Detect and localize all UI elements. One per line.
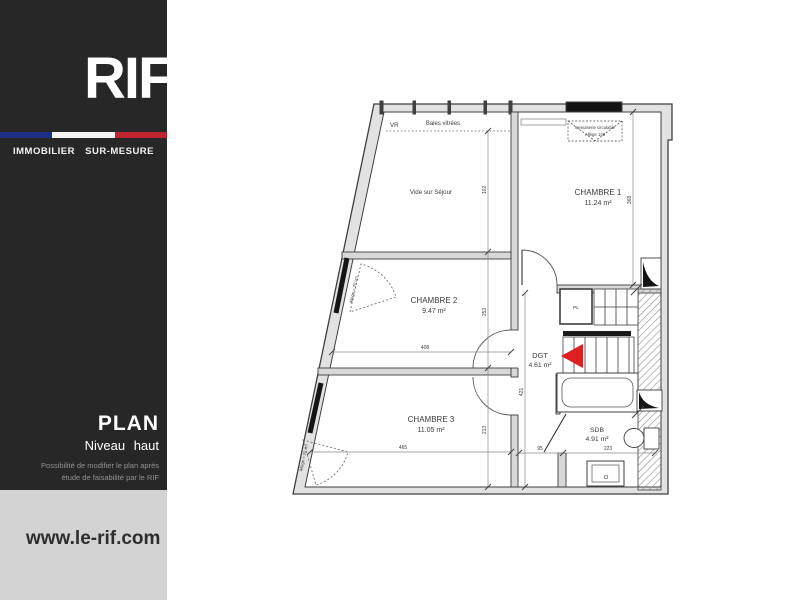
dgt-area: 4.61 m² bbox=[528, 362, 552, 369]
sdb-area: 4.91 m² bbox=[585, 436, 609, 443]
feasibility-note: Possibilité de modifier le plan après ét… bbox=[41, 460, 159, 484]
flag-red bbox=[115, 132, 167, 138]
brand-panel: RIF IMMOBILIER SUR-MESURE PLAN Niveau ha… bbox=[0, 0, 167, 490]
dim-sdb-left-width: 95 bbox=[537, 446, 543, 452]
dim-chambre3-width: 465 bbox=[399, 445, 408, 451]
bathtub-icon bbox=[557, 373, 638, 412]
brand-logo: RIF bbox=[84, 50, 171, 108]
vr-label: VR bbox=[390, 122, 399, 129]
dim-chambre1-height: 368 bbox=[627, 196, 633, 205]
dim-void-height: 102 bbox=[482, 186, 488, 195]
dim-sdb-width: 223 bbox=[604, 446, 613, 452]
chambre1-window-bar bbox=[566, 102, 622, 112]
note-line-1: Possibilité de modifier le plan après bbox=[41, 460, 159, 472]
dim-chambre2-height: 253 bbox=[482, 308, 488, 317]
chambre1-label: CHAMBRE 1 bbox=[575, 188, 622, 197]
french-flag-stripe bbox=[0, 132, 167, 138]
flag-white bbox=[52, 132, 115, 138]
window-note-line2: Allège 140 bbox=[585, 132, 606, 137]
dim-chambre3-height: 213 bbox=[482, 426, 488, 435]
void-label: Vide sur Séjour bbox=[410, 189, 452, 196]
chambre2-label: CHAMBRE 2 bbox=[411, 296, 458, 305]
sdb-label: SDB bbox=[590, 427, 604, 434]
window-note-line1: menuiserie circulable bbox=[575, 125, 616, 130]
stair-guard bbox=[563, 331, 631, 336]
plan-subtitle: Niveau haut bbox=[85, 438, 159, 453]
chambre1-area: 11.24 m² bbox=[584, 200, 612, 207]
plan-title: PLAN bbox=[85, 412, 159, 436]
brand-tagline: IMMOBILIER SUR-MESURE bbox=[0, 146, 167, 157]
chambre3-label: CHAMBRE 3 bbox=[408, 415, 455, 424]
hatched-wall bbox=[638, 289, 661, 490]
closet-label: PL bbox=[573, 305, 579, 311]
dim-chambre2-width: 408 bbox=[421, 345, 430, 351]
chambre3-area: 11.05 m² bbox=[417, 427, 445, 434]
website-url: www.le-rif.com bbox=[26, 528, 160, 550]
flag-blue bbox=[0, 132, 52, 138]
dim-dgt-height: 421 bbox=[519, 388, 525, 397]
dgt-label: DGT bbox=[532, 351, 548, 360]
plan-title-block: PLAN Niveau haut bbox=[85, 412, 159, 453]
glazing-label: Baies vitrées bbox=[426, 121, 460, 127]
chambre2-area: 9.47 m² bbox=[422, 308, 446, 315]
toilet-icon bbox=[644, 428, 659, 449]
footer-panel: www.le-rif.com bbox=[0, 490, 167, 600]
note-line-2: étude de faisabilité par le RIF bbox=[41, 472, 159, 484]
